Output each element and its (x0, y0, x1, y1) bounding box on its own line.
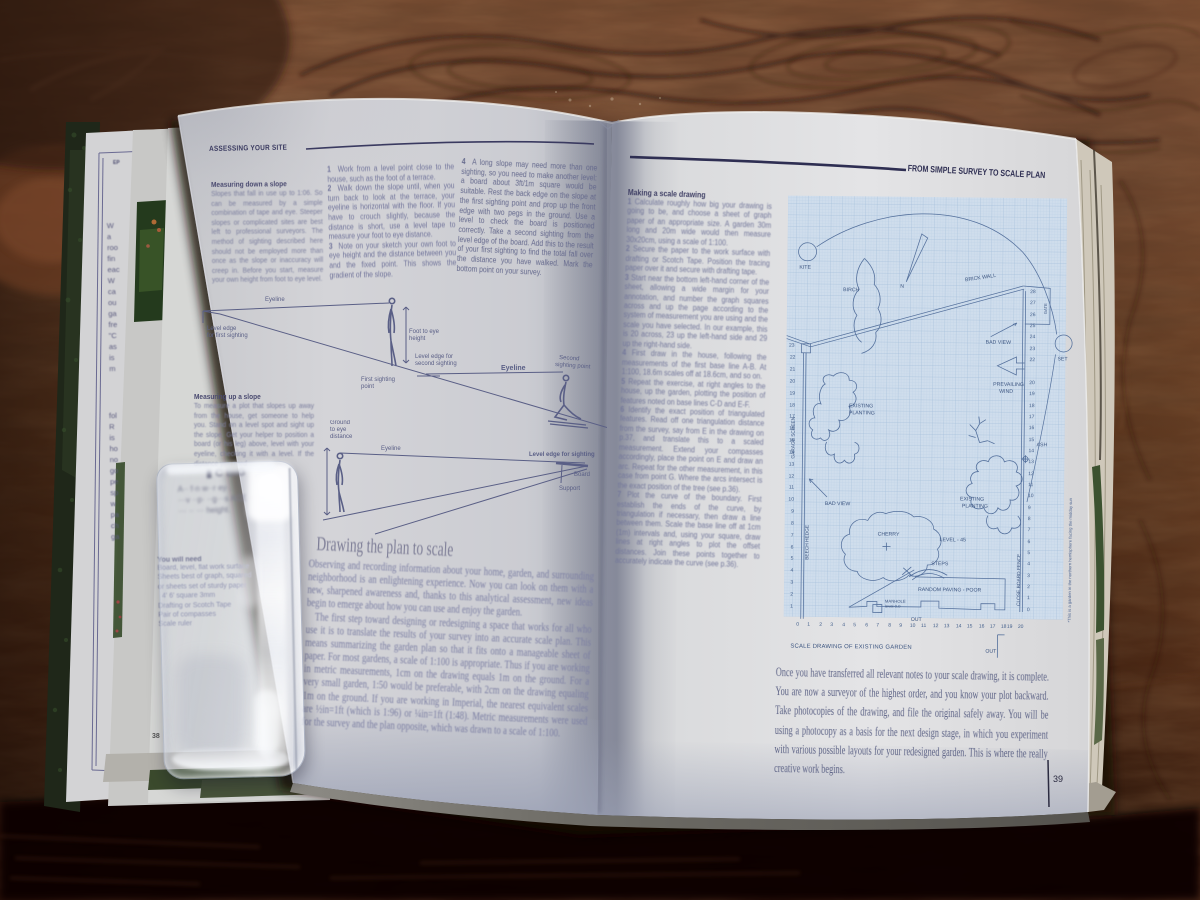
svg-text:19: 19 (1007, 624, 1013, 630)
svg-text:3: 3 (830, 622, 833, 628)
svg-text:6: 6 (1028, 539, 1031, 545)
svg-text:6: 6 (791, 545, 794, 551)
svg-text:BEECH HEDGE: BEECH HEDGE (804, 525, 810, 560)
svg-text:21: 21 (790, 367, 796, 373)
svg-text:23: 23 (1030, 346, 1036, 352)
svg-text:GATE: GATE (1043, 303, 1048, 314)
svg-text:6: 6 (865, 622, 868, 628)
svg-text:24: 24 (1030, 334, 1036, 340)
svg-text:15: 15 (967, 623, 973, 629)
svg-text:Eyeline: Eyeline (265, 297, 285, 303)
svg-text:point: point (361, 384, 374, 390)
svg-text:18: 18 (1029, 403, 1035, 409)
svg-text:second sighting: second sighting (415, 361, 457, 367)
svg-text:20: 20 (1018, 624, 1024, 630)
svg-text:to eye: to eye (330, 427, 347, 433)
svg-text:Level edge for sighting: Level edge for sighting (529, 452, 595, 458)
svg-text:14: 14 (956, 623, 962, 629)
svg-text:26: 26 (1030, 312, 1036, 318)
svg-text:13: 13 (1028, 459, 1034, 465)
svg-text:7: 7 (1028, 527, 1031, 533)
svg-text:4: 4 (1027, 561, 1030, 567)
svg-text:28: 28 (1030, 289, 1036, 295)
svg-text:18: 18 (1001, 624, 1007, 630)
svg-text:5: 5 (791, 556, 794, 562)
svg-text:8: 8 (1028, 516, 1031, 522)
svg-text:22: 22 (1029, 357, 1035, 363)
svg-text:CLOSE BOARD FENCE: CLOSE BOARD FENCE (1016, 554, 1023, 606)
svg-text:10: 10 (1028, 493, 1034, 499)
svg-text:SET: SET (1057, 356, 1068, 362)
svg-text:0: 0 (1027, 607, 1030, 613)
svg-text:18: 18 (789, 403, 795, 409)
svg-text:STEPS: STEPS (931, 561, 949, 567)
svg-text:BAD VIEW: BAD VIEW (825, 501, 851, 507)
svg-text:height: height (409, 336, 426, 342)
svg-text:4: 4 (790, 568, 793, 574)
svg-text:19: 19 (1029, 391, 1035, 397)
svg-text:27: 27 (1030, 300, 1036, 306)
svg-text:14: 14 (789, 450, 795, 456)
svg-text:19: 19 (789, 391, 795, 397)
svg-text:11: 11 (789, 485, 794, 491)
svg-text:distance: distance (330, 434, 353, 440)
svg-text:sighting point: sighting point (555, 362, 591, 370)
svg-text:25: 25 (1030, 323, 1036, 329)
svg-text:Board: Board (574, 472, 590, 478)
svg-text:17: 17 (789, 414, 795, 420)
svg-text:7: 7 (876, 623, 879, 629)
svg-text:20: 20 (790, 379, 796, 385)
svg-text:12: 12 (933, 623, 939, 629)
svg-text:level 0.0: level 0.0 (885, 604, 901, 609)
svg-text:EXISTING: EXISTING (960, 496, 984, 502)
svg-text:EXISTING: EXISTING (849, 403, 873, 409)
svg-text:16: 16 (979, 624, 985, 630)
svg-text:13: 13 (789, 462, 795, 468)
svg-text:5: 5 (1027, 550, 1030, 556)
svg-text:Eyeline: Eyeline (381, 446, 401, 452)
svg-text:4: 4 (842, 622, 845, 628)
svg-text:3: 3 (1027, 573, 1030, 579)
svg-text:17: 17 (990, 624, 996, 630)
svg-text:LEVEL - 45: LEVEL - 45 (940, 537, 967, 543)
svg-text:OUT: OUT (985, 649, 997, 655)
svg-text:Foot to eye: Foot to eye (409, 329, 440, 335)
svg-text:PLANTING: PLANTING (962, 503, 988, 509)
svg-text:22: 22 (790, 355, 796, 361)
svg-text:*This is a garden in the north: *This is a garden in the northern hemisp… (1067, 497, 1073, 622)
svg-text:10: 10 (788, 497, 794, 503)
svg-text:1: 1 (790, 604, 793, 610)
svg-text:8: 8 (888, 623, 891, 629)
svg-text:12: 12 (1028, 471, 1034, 477)
svg-text:9: 9 (899, 623, 902, 629)
svg-text:1: 1 (807, 622, 810, 628)
svg-text:13: 13 (944, 623, 950, 629)
svg-text:RANDOM PAVING - POOR: RANDOM PAVING - POOR (918, 587, 982, 594)
svg-text:Level edge: Level edge (207, 326, 237, 332)
svg-text:CHERRY: CHERRY (878, 532, 900, 538)
svg-text:Eyeline: Eyeline (501, 365, 526, 372)
svg-text:15: 15 (789, 438, 795, 444)
svg-text:9: 9 (791, 509, 794, 515)
svg-text:ASH: ASH (1037, 442, 1048, 448)
svg-text:WIND: WIND (999, 389, 1013, 395)
svg-text:23: 23 (789, 343, 795, 349)
svg-text:N: N (900, 284, 904, 290)
svg-text:Ground: Ground (330, 420, 350, 426)
svg-text:Support: Support (559, 486, 580, 492)
svg-text:0: 0 (796, 622, 799, 628)
svg-text:Level edge for: Level edge for (415, 354, 453, 360)
svg-text:2: 2 (819, 622, 822, 628)
svg-text:7: 7 (791, 533, 794, 539)
svg-text:17: 17 (1029, 414, 1035, 420)
svg-text:9: 9 (1028, 505, 1031, 511)
svg-text:First sighting: First sighting (361, 377, 395, 383)
svg-text:BAD VIEW: BAD VIEW (986, 340, 1012, 346)
svg-text:Second: Second (559, 355, 580, 362)
svg-text:2: 2 (1027, 584, 1030, 590)
svg-text:15: 15 (1029, 437, 1035, 443)
svg-text:16: 16 (789, 426, 795, 432)
svg-text:20: 20 (1029, 380, 1035, 386)
svg-text:BIRCH: BIRCH (843, 287, 859, 293)
svg-text:PLANTING: PLANTING (849, 410, 875, 416)
svg-text:5: 5 (853, 622, 856, 628)
svg-text:SCALE DRAWING OF EXISTING GARD: SCALE DRAWING OF EXISTING GARDEN (790, 644, 911, 651)
svg-text:KITE: KITE (799, 265, 811, 271)
svg-text:11: 11 (921, 623, 926, 629)
svg-text:for first sighting: for first sighting (207, 333, 248, 339)
svg-text:3: 3 (790, 580, 793, 586)
svg-text:2: 2 (790, 592, 793, 598)
svg-text:12: 12 (789, 474, 795, 480)
svg-text:11: 11 (1028, 482, 1033, 488)
svg-text:10: 10 (910, 623, 916, 629)
svg-text:8: 8 (791, 521, 794, 527)
svg-text:1: 1 (1027, 595, 1030, 601)
svg-text:16: 16 (1029, 425, 1035, 431)
svg-text:14: 14 (1028, 448, 1034, 454)
svg-text:PREVAILING: PREVAILING (993, 382, 1024, 388)
